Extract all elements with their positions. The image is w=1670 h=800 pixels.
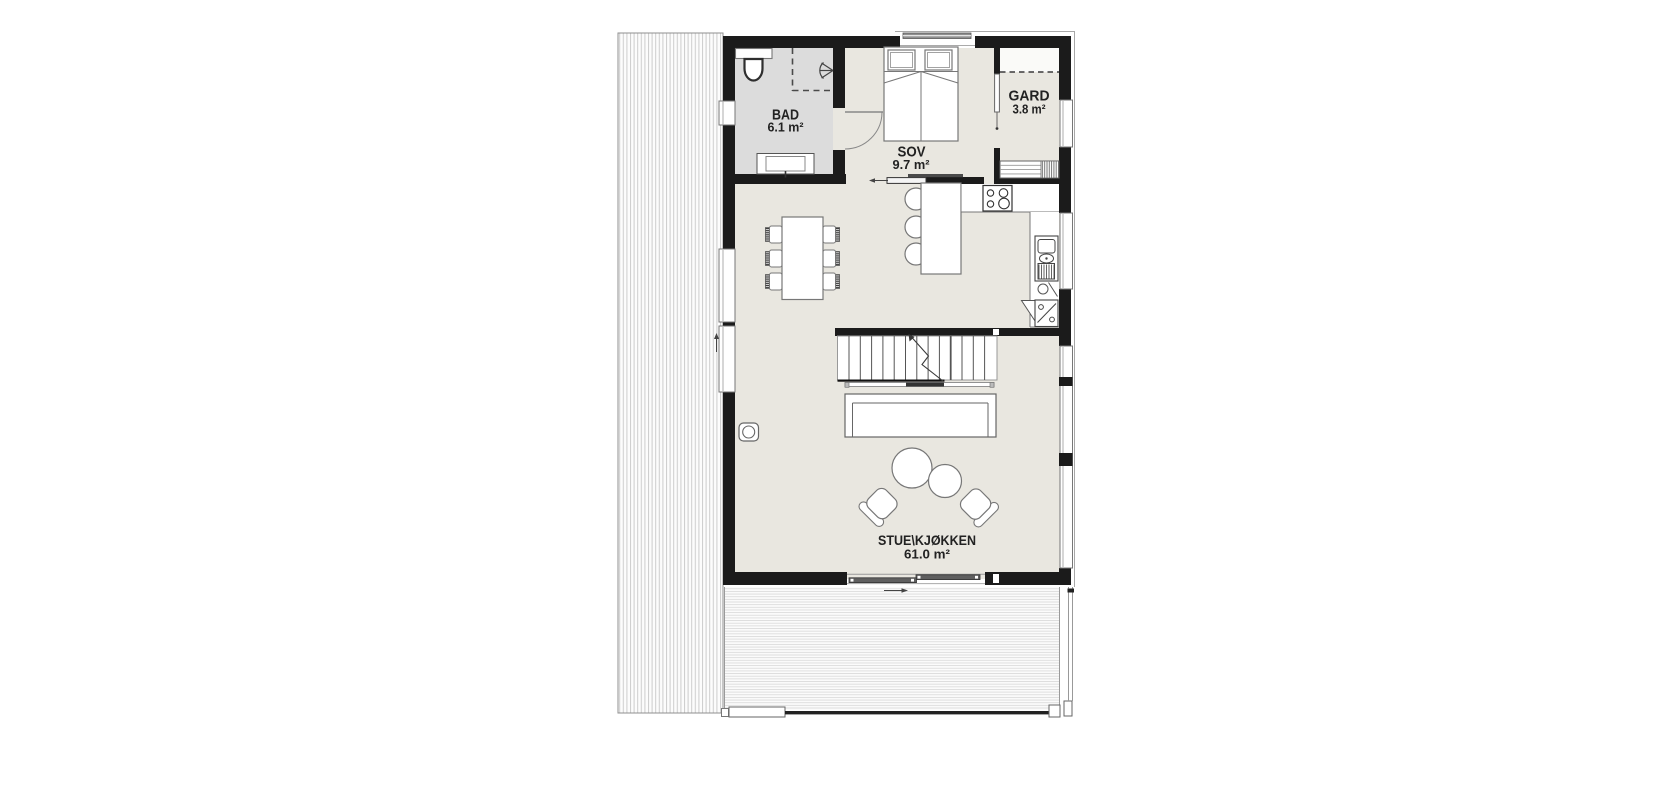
svg-text:61.0 m²: 61.0 m²: [904, 547, 951, 562]
svg-text:3.8 m²: 3.8 m²: [1013, 102, 1047, 117]
svg-text:6.1 m²: 6.1 m²: [768, 120, 805, 135]
svg-text:9.7 m²: 9.7 m²: [893, 157, 931, 172]
